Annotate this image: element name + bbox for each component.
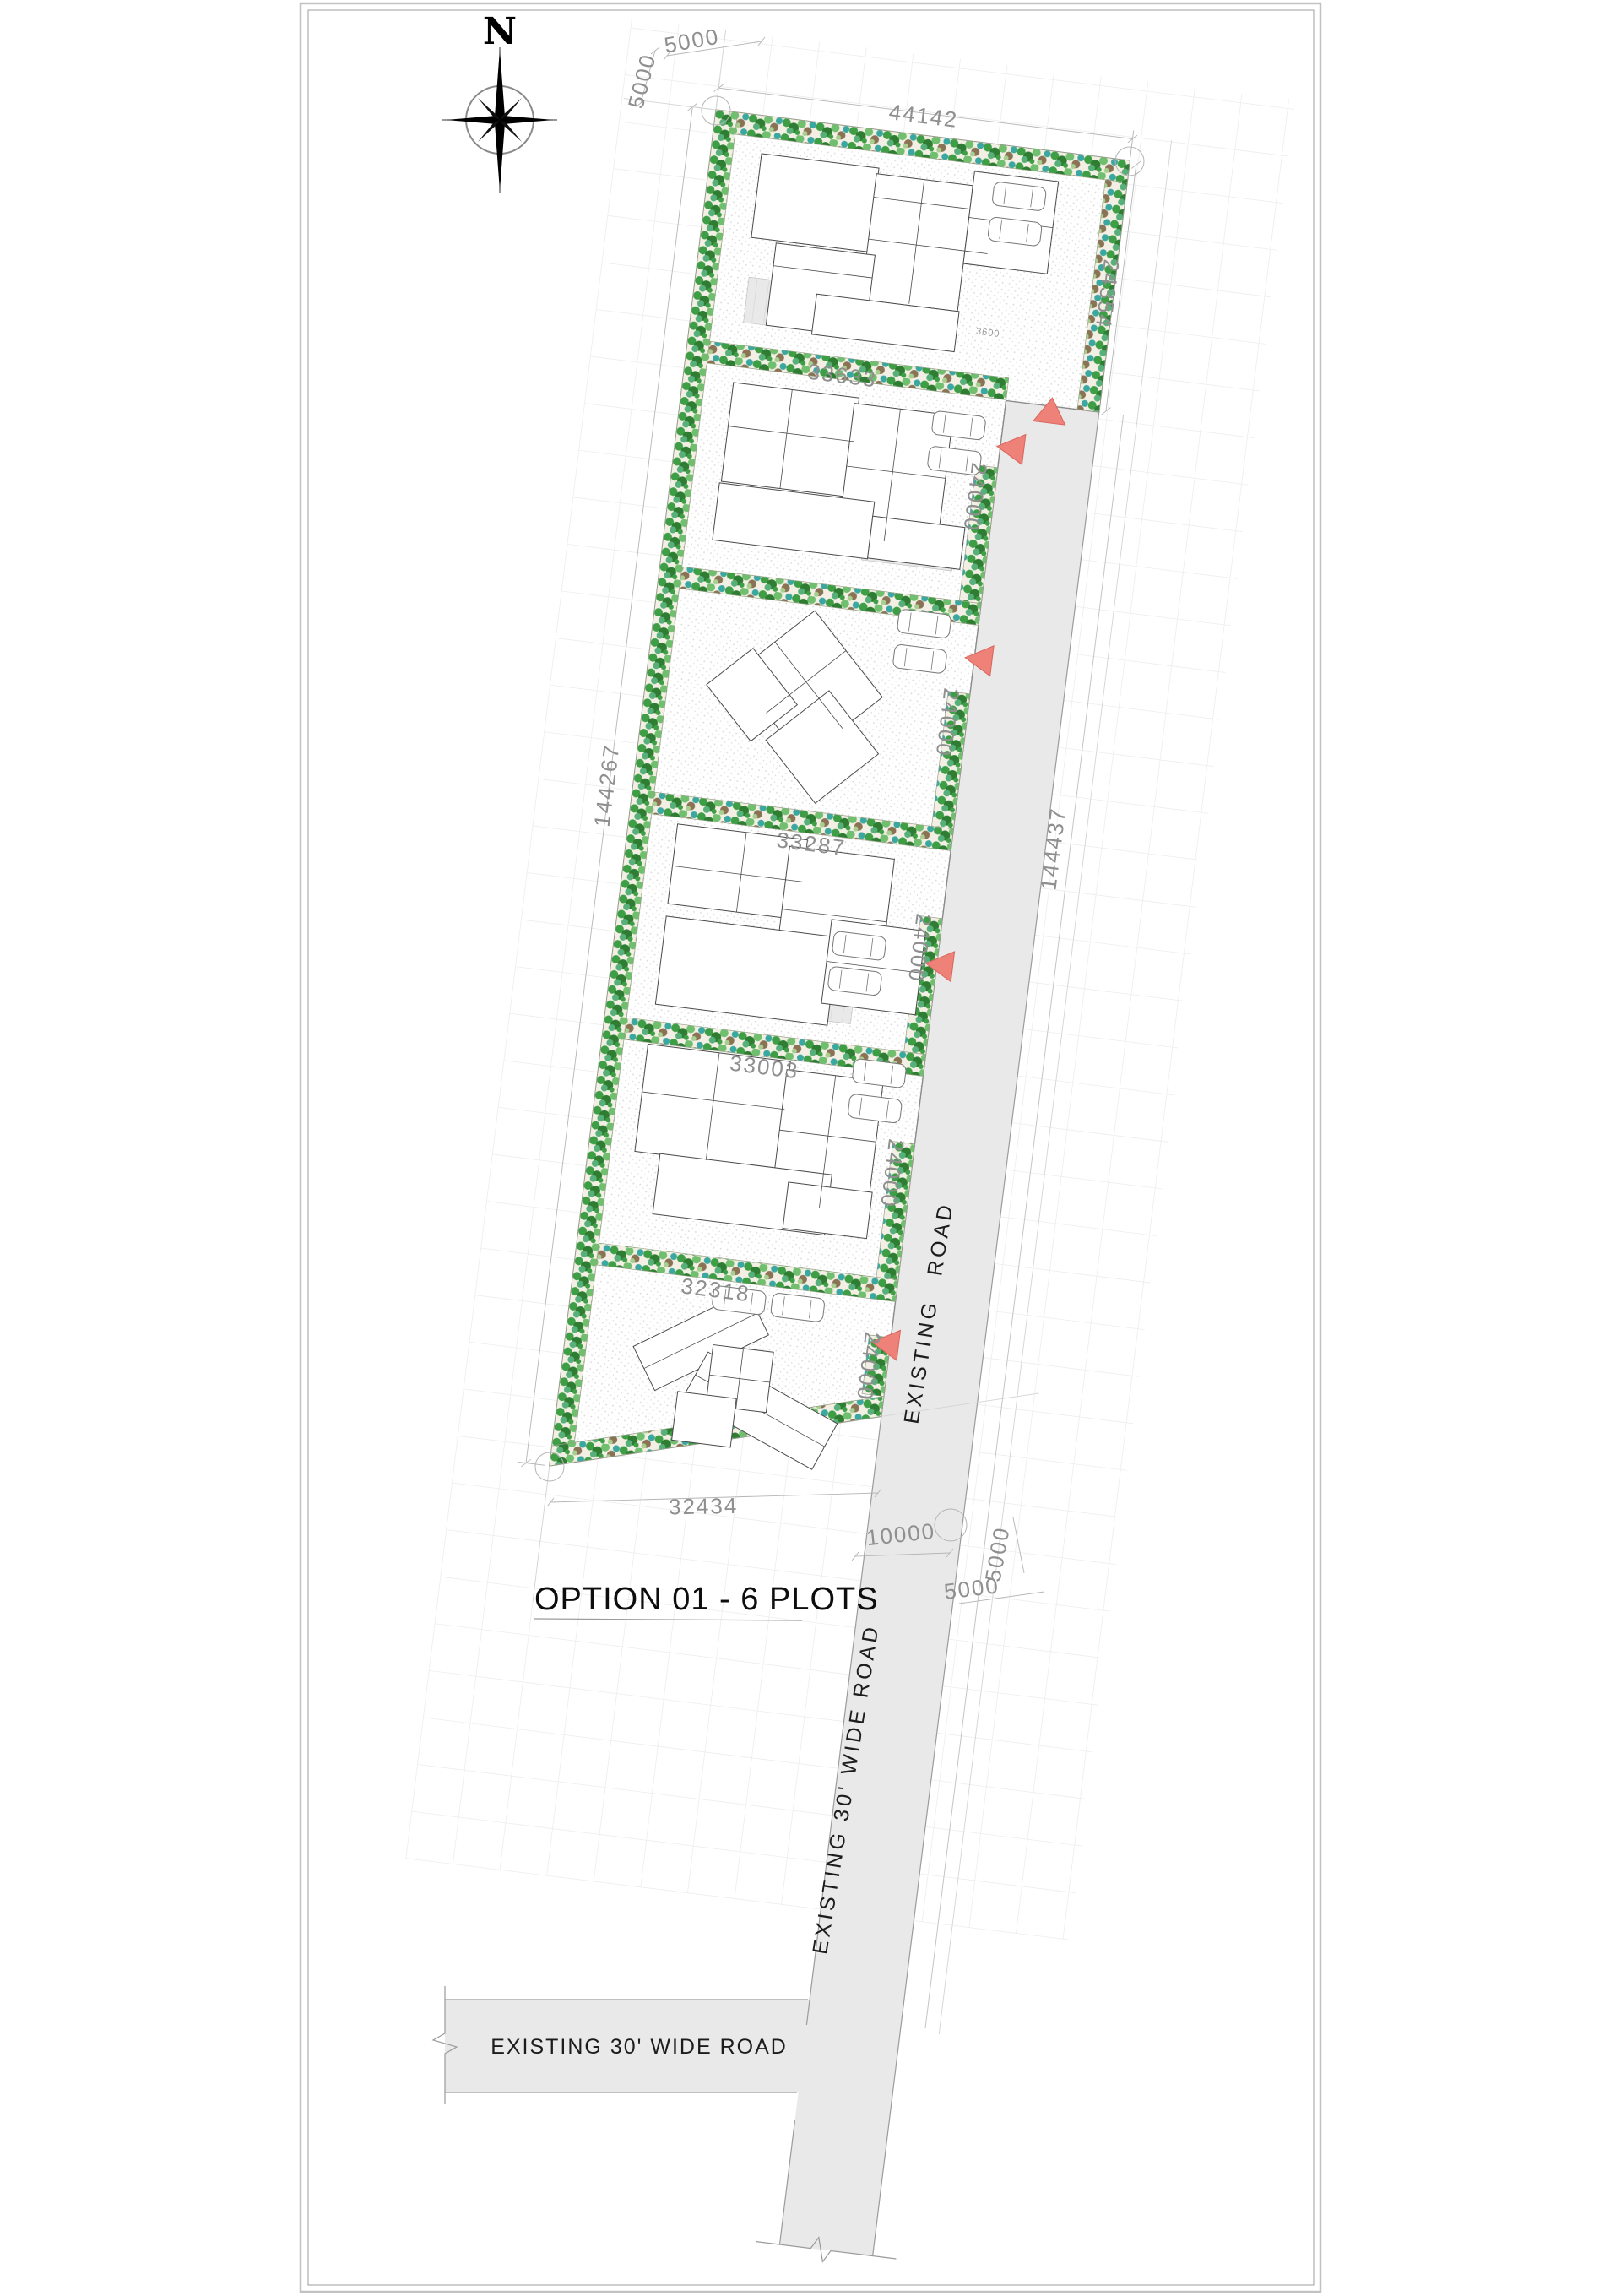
villa-wall bbox=[672, 1392, 737, 1447]
grid-line bbox=[631, 28, 1294, 110]
dim-setback-top-h: 5000 bbox=[662, 24, 721, 58]
dim-west-boundary: 144267 bbox=[589, 742, 625, 828]
villa-wall bbox=[783, 1182, 872, 1239]
title-underline bbox=[534, 1619, 802, 1620]
site-plan-canvas: N bbox=[0, 0, 1621, 2296]
villa-wall bbox=[751, 154, 879, 252]
dim-site-top-width: 44142 bbox=[887, 99, 959, 133]
north-label: N bbox=[483, 10, 517, 53]
wide-road-label-horizontal: EXISTING 30' WIDE ROAD bbox=[491, 2035, 788, 2059]
north-compass: N bbox=[442, 10, 557, 193]
drawing-sheet: N bbox=[0, 0, 1621, 2296]
title-block: OPTION 01 - 6 PLOTS bbox=[534, 1582, 879, 1620]
page-title: OPTION 01 - 6 PLOTS bbox=[534, 1582, 879, 1617]
villa-wall bbox=[861, 174, 973, 312]
